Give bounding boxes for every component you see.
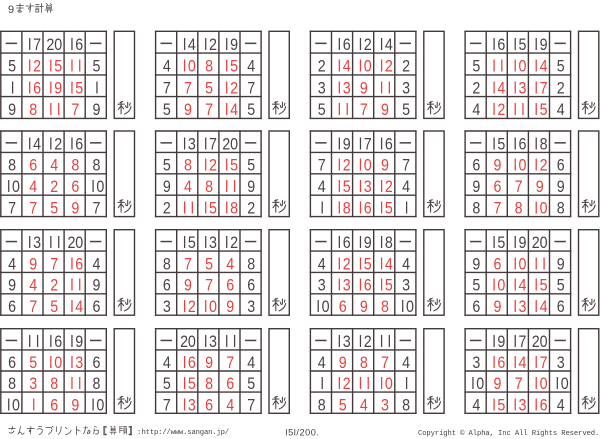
svg-text:9: 9	[343, 135, 351, 153]
svg-text:l: l	[514, 333, 517, 351]
svg-text:l: l	[500, 58, 503, 76]
svg-text:l: l	[492, 333, 495, 351]
svg-text:l: l	[556, 375, 559, 393]
svg-text:5: 5	[75, 79, 83, 97]
svg-text:l: l	[28, 58, 31, 76]
svg-text:l: l	[225, 58, 228, 76]
svg-text:l: l	[359, 178, 362, 196]
svg-text:3: 3	[209, 234, 217, 252]
svg-text:4: 4	[226, 396, 234, 414]
svg-text:7: 7	[381, 354, 389, 372]
svg-text:l: l	[514, 157, 517, 175]
svg-text:l: l	[338, 101, 341, 119]
svg-text:0: 0	[364, 58, 372, 76]
svg-text:8: 8	[8, 157, 16, 175]
svg-text:l: l	[225, 178, 228, 196]
svg-text:l: l	[535, 135, 538, 153]
svg-text:l: l	[380, 58, 383, 76]
svg-text:l: l	[70, 277, 73, 295]
svg-text:l: l	[492, 396, 495, 414]
svg-text:l: l	[49, 101, 52, 119]
svg-text:6: 6	[226, 375, 234, 393]
svg-text:l: l	[380, 200, 383, 218]
svg-text:6: 6	[557, 298, 565, 316]
svg-text:8: 8	[557, 200, 565, 218]
svg-text:5: 5	[8, 58, 16, 76]
svg-text:8: 8	[205, 178, 213, 196]
svg-text:6: 6	[343, 36, 351, 54]
svg-text:9: 9	[540, 36, 548, 54]
svg-text:9: 9	[54, 79, 62, 97]
svg-text:6: 6	[493, 178, 501, 196]
svg-text:0: 0	[518, 157, 526, 175]
svg-text:0: 0	[497, 277, 505, 295]
svg-text:0: 0	[188, 333, 196, 351]
svg-text:l: l	[70, 298, 73, 316]
svg-text:l: l	[359, 36, 362, 54]
svg-text:l: l	[183, 298, 186, 316]
svg-text:l: l	[57, 101, 60, 119]
svg-text:6: 6	[33, 79, 41, 97]
svg-text:Copyright © Alpha, Inc All Rig: Copyright © Alpha, Inc All Rights Reserv…	[418, 429, 599, 438]
svg-text:6: 6	[92, 354, 100, 372]
svg-text:2: 2	[67, 234, 75, 252]
svg-text:l: l	[535, 58, 538, 76]
svg-text:8: 8	[92, 375, 100, 393]
svg-text:6: 6	[29, 157, 37, 175]
svg-text:4: 4	[226, 255, 234, 273]
svg-text:9: 9	[230, 36, 238, 54]
svg-text:0: 0	[230, 135, 238, 153]
svg-text:l: l	[514, 396, 517, 414]
svg-text:9: 9	[71, 396, 79, 414]
svg-text:3: 3	[188, 135, 196, 153]
svg-text:8: 8	[360, 354, 368, 372]
svg-text:l: l	[380, 255, 383, 273]
svg-text:2: 2	[180, 333, 188, 351]
svg-text:l: l	[388, 79, 391, 97]
svg-text:9: 9	[75, 333, 83, 351]
svg-text:9: 9	[381, 157, 389, 175]
svg-text:l: l	[91, 178, 94, 196]
svg-text:5: 5	[50, 298, 58, 316]
svg-text:l: l	[70, 255, 73, 273]
svg-text:3: 3	[247, 298, 255, 316]
svg-text:5: 5	[230, 58, 238, 76]
svg-text:5: 5	[518, 36, 526, 54]
svg-text:4: 4	[318, 255, 326, 273]
svg-text:2: 2	[318, 58, 326, 76]
svg-text:8: 8	[540, 135, 548, 153]
svg-text:l: l	[225, 79, 228, 97]
svg-text:6: 6	[205, 396, 213, 414]
svg-text:0: 0	[561, 375, 569, 393]
svg-text:0: 0	[188, 58, 196, 76]
svg-text:3: 3	[402, 79, 410, 97]
svg-text:l: l	[49, 354, 52, 372]
svg-text:9: 9	[339, 354, 347, 372]
svg-text:7: 7	[50, 255, 58, 273]
svg-text:l: l	[542, 255, 545, 273]
svg-text:l: l	[346, 101, 349, 119]
svg-text:l: l	[359, 277, 362, 295]
svg-text:5: 5	[472, 58, 480, 76]
svg-text:3: 3	[33, 234, 41, 252]
svg-text:l: l	[359, 234, 362, 252]
svg-text:5: 5	[163, 375, 171, 393]
svg-text:2: 2	[343, 157, 351, 175]
svg-text:7: 7	[402, 157, 410, 175]
svg-text:2: 2	[385, 58, 393, 76]
svg-text:l: l	[317, 298, 320, 316]
svg-text:l: l	[380, 375, 383, 393]
svg-text:l: l	[70, 79, 73, 97]
svg-text:4: 4	[29, 178, 37, 196]
svg-text:2: 2	[497, 101, 505, 119]
svg-text:9: 9	[29, 255, 37, 273]
svg-text:5: 5	[163, 157, 171, 175]
svg-text:l: l	[514, 36, 517, 54]
svg-text:4: 4	[318, 354, 326, 372]
svg-text:2: 2	[50, 277, 58, 295]
svg-text:4: 4	[518, 277, 526, 295]
svg-text:7: 7	[184, 79, 192, 97]
svg-text:4: 4	[402, 354, 410, 372]
svg-text:7: 7	[540, 79, 548, 97]
svg-text:l: l	[225, 157, 228, 175]
svg-text:2: 2	[540, 157, 548, 175]
svg-text:l: l	[359, 255, 362, 273]
svg-text:9: 9	[8, 4, 14, 16]
svg-text:5: 5	[247, 375, 255, 393]
svg-text:4: 4	[318, 178, 326, 196]
svg-text:http://www.sangan.jp/: http://www.sangan.jp/	[142, 429, 229, 437]
svg-text:2: 2	[343, 255, 351, 273]
svg-text:7: 7	[247, 396, 255, 414]
svg-text:6: 6	[8, 354, 16, 372]
svg-text:9: 9	[381, 101, 389, 119]
svg-text:l: l	[70, 375, 73, 393]
svg-text:0: 0	[54, 36, 62, 54]
svg-text:4: 4	[472, 396, 480, 414]
svg-text:7: 7	[318, 157, 326, 175]
svg-text:7: 7	[515, 375, 523, 393]
svg-text:0: 0	[518, 255, 526, 273]
svg-text:3: 3	[364, 178, 372, 196]
svg-text:8: 8	[318, 396, 326, 414]
svg-text:8: 8	[50, 375, 58, 393]
svg-text:6: 6	[557, 157, 565, 175]
svg-text:8: 8	[343, 200, 351, 218]
svg-text:6: 6	[188, 354, 196, 372]
svg-text:l: l	[492, 101, 495, 119]
svg-text:5: 5	[557, 58, 565, 76]
svg-text:l: l	[514, 135, 517, 153]
svg-text:l: l	[405, 200, 408, 218]
svg-text:8: 8	[247, 255, 255, 273]
svg-text:2: 2	[364, 333, 372, 351]
svg-text:l: l	[225, 234, 228, 252]
svg-text:2: 2	[209, 157, 217, 175]
svg-text:5: 5	[247, 101, 255, 119]
svg-text:2: 2	[33, 58, 41, 76]
svg-text:9: 9	[205, 354, 213, 372]
svg-text:l: l	[380, 178, 383, 196]
svg-text:9: 9	[518, 234, 526, 252]
svg-text:7: 7	[29, 200, 37, 218]
svg-text:5: 5	[188, 375, 196, 393]
svg-text:l: l	[70, 58, 73, 76]
svg-text:7: 7	[33, 36, 41, 54]
svg-text:l: l	[183, 58, 186, 76]
svg-text:6: 6	[472, 298, 480, 316]
svg-text:3: 3	[343, 79, 351, 97]
svg-text:l: l	[225, 101, 228, 119]
svg-text:l: l	[32, 396, 35, 414]
svg-text:8: 8	[402, 396, 410, 414]
svg-text:l: l	[95, 79, 98, 97]
svg-text:l: l	[535, 157, 538, 175]
svg-text:l: l	[204, 234, 207, 252]
svg-text:l: l	[338, 79, 341, 97]
svg-text:l: l	[338, 178, 341, 196]
svg-text:l: l	[183, 396, 186, 414]
svg-text:0: 0	[75, 234, 83, 252]
svg-text:l: l	[359, 333, 362, 351]
svg-text:5: 5	[364, 255, 372, 273]
svg-text:l: l	[183, 36, 186, 54]
svg-text:0: 0	[322, 298, 330, 316]
svg-text:9: 9	[360, 79, 368, 97]
svg-text:3: 3	[381, 396, 389, 414]
svg-text:7: 7	[493, 200, 501, 218]
svg-text:3: 3	[518, 298, 526, 316]
svg-text:4: 4	[29, 277, 37, 295]
svg-text:4: 4	[247, 354, 255, 372]
svg-text:l: l	[78, 375, 81, 393]
svg-text:6: 6	[75, 36, 83, 54]
svg-text:9: 9	[493, 157, 501, 175]
svg-text:4: 4	[540, 298, 548, 316]
svg-text:4: 4	[92, 255, 100, 273]
svg-text:6: 6	[50, 396, 58, 414]
svg-text:4: 4	[360, 396, 368, 414]
svg-text:0: 0	[406, 298, 414, 316]
svg-text:6: 6	[163, 277, 171, 295]
svg-text:8: 8	[92, 157, 100, 175]
svg-text:l: l	[380, 234, 383, 252]
svg-text:3: 3	[188, 396, 196, 414]
svg-text:4: 4	[184, 178, 192, 196]
svg-text:l: l	[380, 135, 383, 153]
svg-text:l: l	[49, 333, 52, 351]
svg-text:9: 9	[360, 298, 368, 316]
svg-text:3: 3	[318, 277, 326, 295]
svg-text:l: l	[514, 58, 517, 76]
svg-text:3: 3	[75, 354, 83, 372]
svg-text:9: 9	[493, 298, 501, 316]
svg-text:8: 8	[205, 375, 213, 393]
svg-text:l: l	[492, 135, 495, 153]
svg-text:l: l	[28, 79, 31, 97]
svg-text:l: l	[380, 36, 383, 54]
svg-text:l: l	[367, 375, 370, 393]
svg-text:2: 2	[230, 234, 238, 252]
svg-text:4: 4	[343, 58, 351, 76]
svg-text:l: l	[535, 101, 538, 119]
svg-text:l: l	[338, 200, 341, 218]
svg-text:6: 6	[226, 277, 234, 295]
svg-text:0: 0	[96, 396, 104, 414]
svg-text:8: 8	[71, 157, 79, 175]
svg-text:5: 5	[205, 255, 213, 273]
svg-text:l: l	[535, 277, 538, 295]
svg-text:8: 8	[472, 200, 480, 218]
svg-text:7: 7	[29, 298, 37, 316]
svg-text:l: l	[401, 298, 404, 316]
svg-text:7: 7	[515, 178, 523, 196]
svg-text:l5l/200.: l5l/200.	[286, 428, 320, 438]
svg-text:8: 8	[205, 58, 213, 76]
svg-text:8: 8	[230, 200, 238, 218]
svg-text:l: l	[49, 135, 52, 153]
svg-text:6: 6	[75, 135, 83, 153]
svg-text:9: 9	[92, 277, 100, 295]
svg-text:l: l	[225, 200, 228, 218]
svg-text:l: l	[338, 36, 341, 54]
svg-text:2: 2	[557, 79, 565, 97]
svg-text:2: 2	[50, 178, 58, 196]
svg-text:2: 2	[364, 36, 372, 54]
svg-text:7: 7	[71, 101, 79, 119]
svg-text:8: 8	[385, 234, 393, 252]
svg-text:l: l	[49, 58, 52, 76]
svg-text:0: 0	[385, 375, 393, 393]
svg-text:l: l	[225, 36, 228, 54]
svg-text:l: l	[492, 354, 495, 372]
svg-text:7: 7	[92, 200, 100, 218]
svg-text:6: 6	[71, 178, 79, 196]
svg-text:6: 6	[8, 298, 16, 316]
svg-text:0: 0	[54, 354, 62, 372]
svg-text:l: l	[57, 234, 60, 252]
svg-text:l: l	[233, 333, 236, 351]
svg-text:2: 2	[472, 79, 480, 97]
svg-text:l: l	[204, 36, 207, 54]
svg-text:4: 4	[247, 58, 255, 76]
svg-text:9: 9	[92, 101, 100, 119]
svg-text:9: 9	[364, 234, 372, 252]
svg-text:l: l	[183, 234, 186, 252]
svg-text:7: 7	[205, 101, 213, 119]
svg-text:l: l	[514, 354, 517, 372]
svg-text:3: 3	[343, 333, 351, 351]
svg-text:2: 2	[54, 135, 62, 153]
svg-text:l: l	[471, 375, 474, 393]
svg-text:0: 0	[12, 396, 20, 414]
svg-text:6: 6	[497, 354, 505, 372]
svg-text:0: 0	[518, 58, 526, 76]
svg-text:3: 3	[209, 333, 217, 351]
svg-text:0: 0	[209, 298, 217, 316]
svg-text:6: 6	[364, 277, 372, 295]
svg-text:5: 5	[497, 135, 505, 153]
svg-text:l: l	[7, 396, 10, 414]
svg-text:7: 7	[226, 354, 234, 372]
svg-text:5: 5	[163, 101, 171, 119]
svg-text:9: 9	[536, 178, 544, 196]
svg-text:l: l	[492, 58, 495, 76]
svg-text:l: l	[7, 178, 10, 196]
svg-text:l: l	[78, 58, 81, 76]
svg-text:5: 5	[540, 101, 548, 119]
svg-text:5: 5	[497, 234, 505, 252]
svg-text:6: 6	[518, 135, 526, 153]
svg-text:l: l	[521, 101, 524, 119]
svg-text:l: l	[514, 101, 517, 119]
svg-text:l: l	[70, 354, 73, 372]
svg-text:l: l	[204, 298, 207, 316]
svg-text:9: 9	[497, 333, 505, 351]
svg-text:7: 7	[8, 200, 16, 218]
svg-text:2: 2	[46, 36, 54, 54]
svg-text:5: 5	[188, 234, 196, 252]
svg-text:4: 4	[402, 255, 410, 273]
svg-text:9: 9	[557, 255, 565, 273]
svg-text:6: 6	[493, 255, 501, 273]
svg-text:4: 4	[163, 354, 171, 372]
svg-text:l: l	[492, 234, 495, 252]
svg-text:0: 0	[96, 178, 104, 196]
svg-text:l: l	[380, 79, 383, 97]
svg-text:4: 4	[540, 58, 548, 76]
svg-text:3: 3	[29, 375, 37, 393]
svg-text:5: 5	[92, 58, 100, 76]
svg-text:l: l	[535, 200, 538, 218]
svg-text:7: 7	[205, 277, 213, 295]
svg-text:4: 4	[557, 101, 565, 119]
svg-text:9: 9	[163, 178, 171, 196]
svg-text:2: 2	[230, 79, 238, 97]
svg-text:4: 4	[402, 178, 410, 196]
svg-text:6: 6	[497, 36, 505, 54]
svg-text:5: 5	[540, 277, 548, 295]
svg-text:l: l	[321, 375, 324, 393]
svg-text:l: l	[204, 135, 207, 153]
svg-text:l: l	[36, 333, 39, 351]
svg-text:l: l	[405, 375, 408, 393]
svg-text:l: l	[514, 255, 517, 273]
svg-text:5: 5	[29, 354, 37, 372]
svg-text:l: l	[535, 354, 538, 372]
svg-text:4: 4	[385, 255, 393, 273]
svg-text:l: l	[492, 36, 495, 54]
svg-text:5: 5	[402, 101, 410, 119]
svg-text:l: l	[28, 234, 31, 252]
svg-text:2: 2	[188, 298, 196, 316]
svg-text:5: 5	[318, 101, 326, 119]
svg-text:8: 8	[8, 375, 16, 393]
svg-text:6: 6	[54, 333, 62, 351]
svg-text:l: l	[535, 375, 538, 393]
svg-text:3: 3	[163, 298, 171, 316]
svg-text:l: l	[233, 178, 236, 196]
svg-text:6: 6	[339, 298, 347, 316]
svg-text:3: 3	[318, 79, 326, 97]
svg-text:l: l	[338, 58, 341, 76]
svg-text:0: 0	[364, 157, 372, 175]
svg-text:0: 0	[476, 375, 484, 393]
